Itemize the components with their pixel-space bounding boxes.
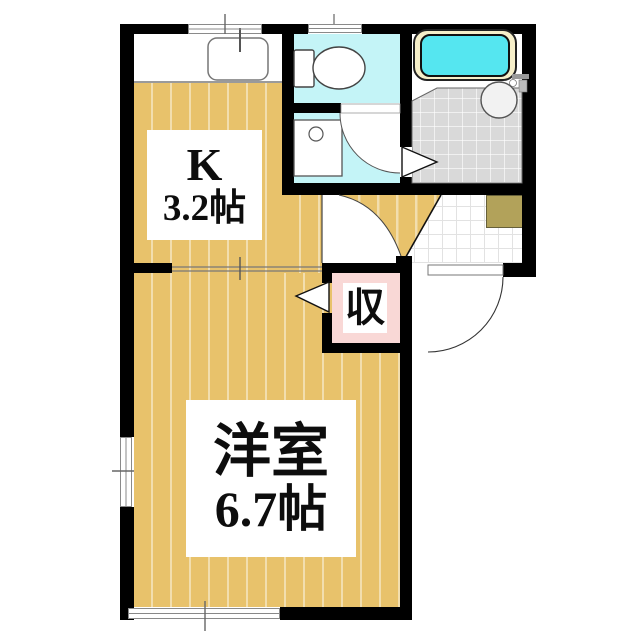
folding-door-closet xyxy=(296,282,329,312)
swing-door-washroom xyxy=(340,104,400,173)
entrance-door xyxy=(428,265,503,352)
window-marks xyxy=(112,14,361,631)
kitchen-sink xyxy=(208,38,268,80)
bath-basin xyxy=(481,82,517,118)
sliding-door xyxy=(172,257,322,280)
toilet-tank xyxy=(294,50,314,87)
floor-plan: K 3.2帖 洋室 6.7帖 収 xyxy=(0,0,640,640)
toilet-bowl xyxy=(313,47,365,89)
washbasin xyxy=(294,120,342,176)
swing-door-hall xyxy=(322,195,441,268)
fixtures-overlay xyxy=(0,0,640,640)
bathtub xyxy=(414,30,516,80)
